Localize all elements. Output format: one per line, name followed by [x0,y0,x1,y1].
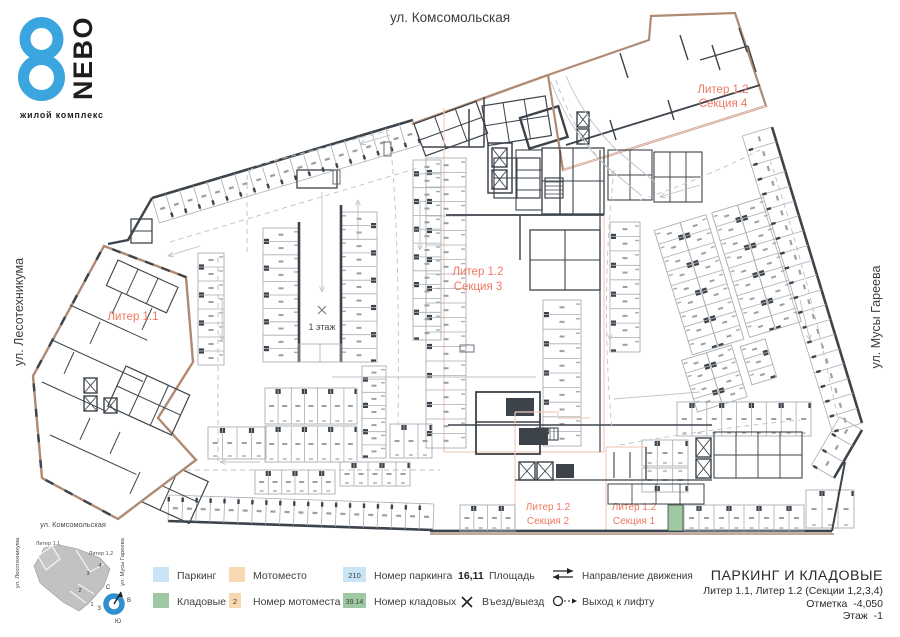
svg-text:Литер 1.1, Литер 1.2 (Секции 1: Литер 1.1, Литер 1.2 (Секции 1,2,3,4) [703,585,883,597]
svg-text:Секция 1: Секция 1 [613,516,656,527]
svg-text:Литер 1.2: Литер 1.2 [452,266,503,278]
svg-text:Направление движения: Направление движения [582,571,693,582]
svg-text:210: 210 [348,571,361,580]
svg-text:Номер паркинга: Номер паркинга [374,570,452,582]
svg-text:Номер кладовых: Номер кладовых [374,596,457,608]
svg-text:Литер 1.1: Литер 1.1 [36,541,60,547]
svg-text:Паркинг: Паркинг [177,570,216,582]
svg-text:Отметка -4,050: Отметка -4,050 [806,598,883,610]
svg-text:Литер 1.2: Литер 1.2 [89,551,113,557]
svg-text:2: 2 [78,588,81,594]
svg-text:Литер 1.1: Литер 1.1 [107,311,158,323]
svg-text:ПАРКИНГ И КЛАДОВЫЕ: ПАРКИНГ И КЛАДОВЫЕ [711,568,883,584]
svg-text:Кладовые: Кладовые [177,596,226,608]
svg-text:ул. Лесотехникума: ул. Лесотехникума [15,537,21,588]
svg-text:NEBO: NEBO [68,16,98,100]
svg-text:Площадь: Площадь [489,570,535,582]
svg-text:С: С [106,585,111,591]
svg-text:ул. Мусы Гареева: ул. Мусы Гареева [869,266,883,369]
svg-text:3: 3 [86,571,89,577]
svg-text:ул. Мусы Гареева: ул. Мусы Гареева [120,537,126,586]
svg-text:ул. Комсомольская: ул. Комсомольская [40,520,106,529]
svg-text:Секция 3: Секция 3 [454,281,503,293]
svg-text:Секция 2: Секция 2 [527,516,570,527]
svg-text:39.14: 39.14 [346,599,364,606]
svg-text:жилой комплекс: жилой комплекс [19,110,104,120]
svg-text:Выход к лифту: Выход к лифту [582,596,655,608]
svg-text:1 этаж: 1 этаж [309,322,336,332]
svg-text:Литер 1.2: Литер 1.2 [526,502,571,513]
svg-text:Номер мотоместа: Номер мотоместа [253,596,341,608]
svg-text:2: 2 [233,597,237,606]
svg-text:16,11: 16,11 [458,570,484,582]
svg-text:Литер 1.2: Литер 1.2 [697,84,748,96]
svg-text:4: 4 [98,563,101,569]
svg-text:ул. Лесотехникума: ул. Лесотехникума [12,258,26,366]
svg-text:З: З [97,606,101,612]
svg-text:Ю: Ю [115,619,121,625]
svg-text:1: 1 [90,602,93,608]
svg-text:ул. Комсомольская: ул. Комсомольская [390,10,510,25]
svg-text:Въезд/выезд: Въезд/выезд [482,596,544,608]
svg-text:Секция 4: Секция 4 [699,98,748,110]
svg-text:Этаж -1: Этаж -1 [843,610,883,622]
svg-text:В: В [127,598,131,604]
svg-text:Мотоместо: Мотоместо [253,570,307,582]
